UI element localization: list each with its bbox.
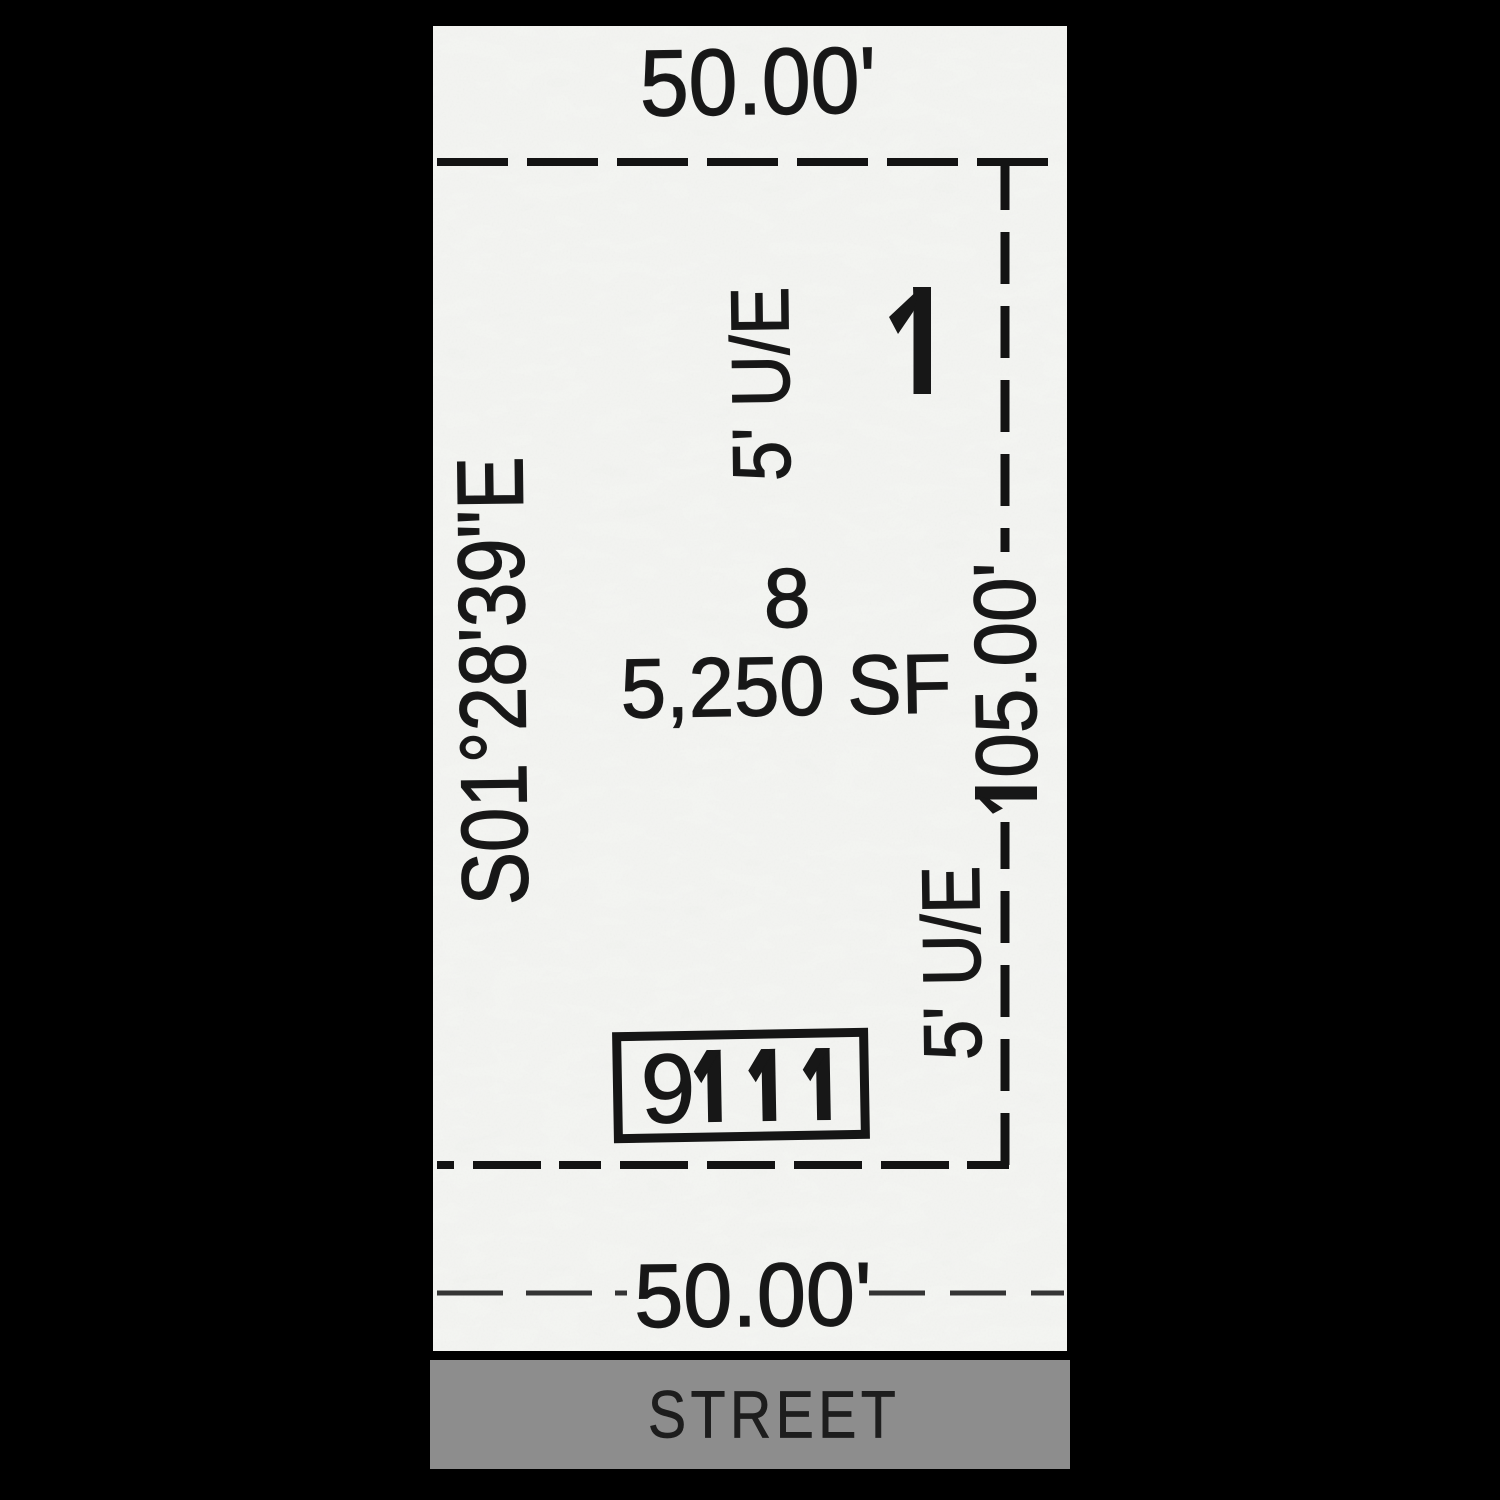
svg-text:9: 9: [640, 1037, 696, 1134]
